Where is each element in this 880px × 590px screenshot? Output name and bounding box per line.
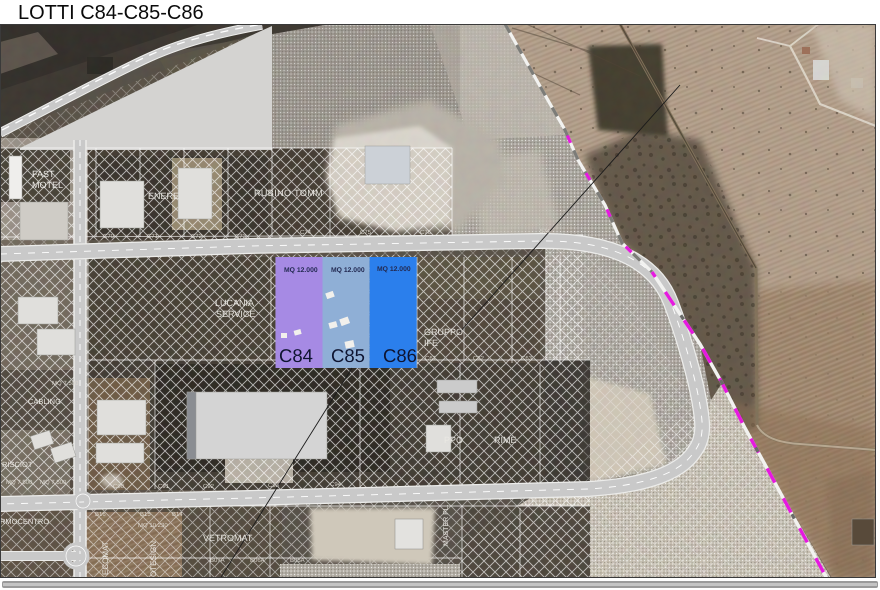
- svg-text:CABLING: CABLING: [28, 397, 61, 406]
- svg-text:C85: C85: [331, 345, 365, 366]
- svg-text:MQ 7.500: MQ 7.500: [6, 479, 33, 486]
- svg-text:VETROMAT: VETROMAT: [203, 533, 253, 543]
- svg-text:C93: C93: [268, 482, 280, 489]
- svg-text:C71: C71: [147, 233, 159, 240]
- svg-text:C90: C90: [113, 483, 125, 490]
- svg-text:B16: B16: [95, 511, 106, 518]
- svg-text:MQ 7.500: MQ 7.500: [52, 380, 79, 387]
- svg-text:MQ 12.000: MQ 12.000: [377, 266, 411, 273]
- svg-text:C61: C61: [425, 355, 437, 362]
- svg-text:ENERE: ENERE: [148, 191, 179, 201]
- svg-text:LUCANIA: LUCANIA: [215, 298, 254, 308]
- svg-text:C92: C92: [203, 483, 215, 490]
- svg-text:MOTEL: MOTEL: [32, 180, 63, 190]
- svg-text:RISCIOT: RISCIOT: [2, 460, 33, 469]
- svg-text:C84: C84: [279, 345, 313, 366]
- svg-text:C62: C62: [473, 355, 485, 362]
- svg-text:C94: C94: [330, 481, 342, 488]
- svg-text:C63: C63: [521, 355, 533, 362]
- svg-text:ECOMAT: ECOMAT: [101, 541, 110, 575]
- svg-text:C72: C72: [191, 233, 203, 240]
- svg-text:C76: C76: [420, 229, 432, 236]
- svg-text:RIME: RIME: [494, 435, 517, 445]
- svg-text:GRUPPO: GRUPPO: [424, 327, 463, 337]
- svg-text:RUBINO TOMM: RUBINO TOMM: [254, 188, 323, 198]
- svg-text:MQ 12.000: MQ 12.000: [331, 267, 365, 274]
- svg-text:SERVICE: SERVICE: [216, 309, 255, 319]
- svg-text:B14: B14: [172, 511, 183, 518]
- svg-text:IFE: IFE: [424, 338, 438, 348]
- svg-text:B07A: B07A: [210, 557, 225, 564]
- svg-text:B06A: B06A: [250, 557, 265, 564]
- svg-text:B15: B15: [140, 511, 151, 518]
- svg-text:B05A: B05A: [290, 557, 305, 564]
- svg-text:C73: C73: [235, 233, 247, 240]
- svg-text:MQ 10.230: MQ 10.230: [138, 522, 168, 529]
- svg-text:RMOCENTRO: RMOCENTRO: [0, 517, 49, 526]
- svg-text:C74: C74: [300, 229, 312, 236]
- svg-text:MQ 12.000: MQ 12.000: [284, 267, 318, 274]
- svg-text:OTESIGN: OTESIGN: [149, 541, 158, 577]
- svg-text:C91: C91: [158, 483, 170, 490]
- svg-text:MQ 7.500: MQ 7.500: [40, 479, 67, 486]
- svg-text:C70: C70: [103, 233, 115, 240]
- svg-text:PPO: PPO: [444, 435, 463, 445]
- svg-text:MASTER PL.: MASTER PL.: [443, 504, 450, 546]
- svg-text:C86: C86: [383, 345, 417, 366]
- svg-text:C75: C75: [360, 229, 372, 236]
- svg-text:FAST: FAST: [32, 169, 55, 179]
- svg-text:574: 574: [540, 228, 551, 235]
